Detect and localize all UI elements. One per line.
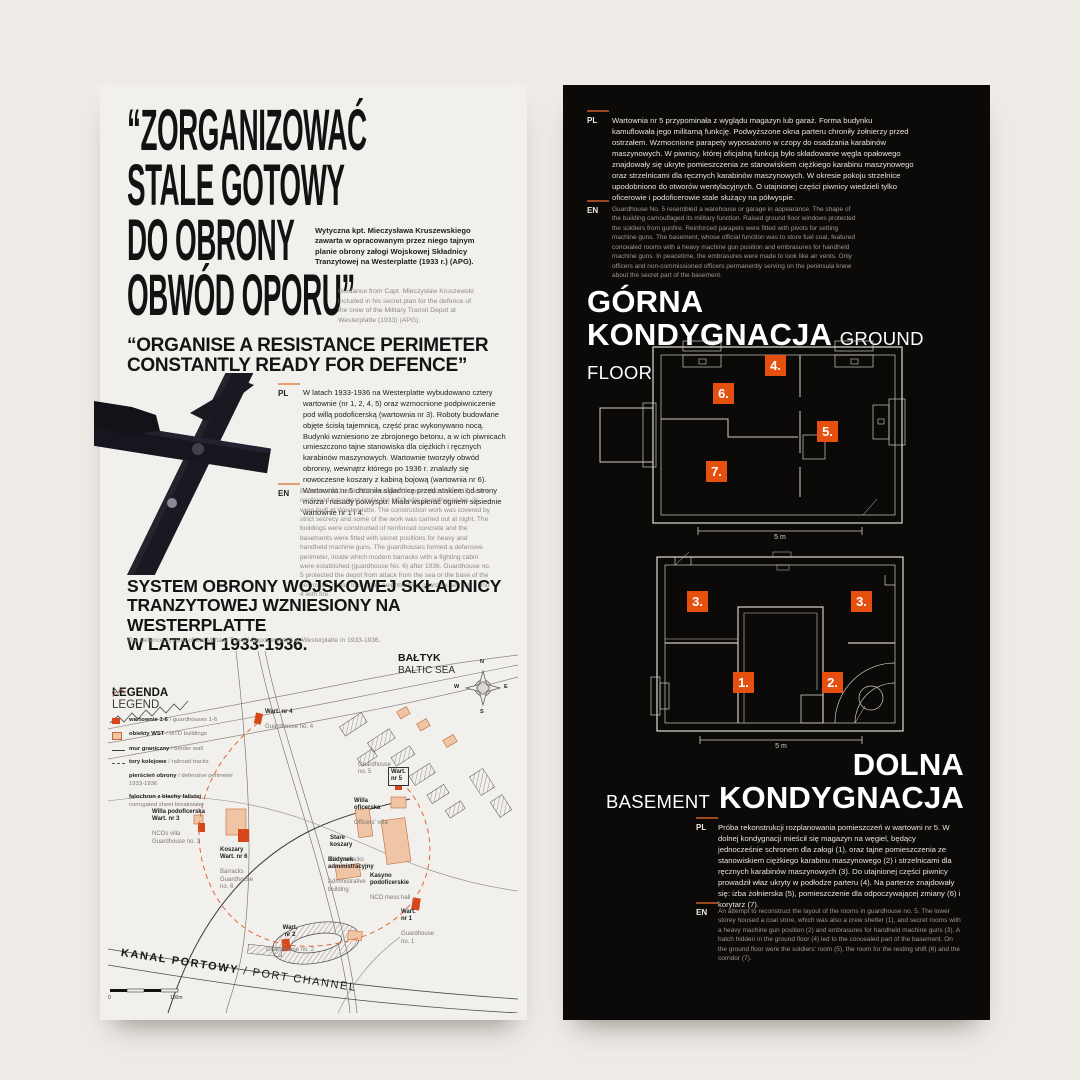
- room-marker-2: 2.: [822, 672, 843, 693]
- top-en-label-block: EN: [587, 200, 609, 215]
- legend-title-en: LEGEND: [112, 699, 234, 711]
- map-label-barracks-6: Koszary Wart. nr 6 Barracks Guardhouse n…: [220, 839, 253, 892]
- metal-cross-icon: [94, 373, 276, 575]
- map-label-guardhouse-2: Wart. nr 2 Guardhouse no. 2: [266, 917, 314, 955]
- legend-label-en: / guardhouses 1-6: [168, 717, 217, 723]
- orange-rule: [696, 817, 718, 819]
- orange-rule: [696, 902, 718, 904]
- room-marker-5: 5.: [817, 421, 838, 442]
- pl-label: PL: [696, 823, 718, 832]
- legend-item: tory kolejowe / railroad tracks: [112, 759, 234, 767]
- sea-label: BAŁTYK BALTIC SEA: [398, 653, 455, 676]
- legend-label-en: / border wall: [169, 746, 203, 752]
- bottom-paragraph-pl: Próba rekonstrukcji rozplanowania pomies…: [718, 822, 961, 910]
- railroad-line-icon: [112, 760, 129, 764]
- legend-item: mur graniczny / border wall: [112, 746, 234, 754]
- subtitle-quote-en: “ORGANISE A RESISTANCE PERIMETER CONSTAN…: [127, 336, 488, 376]
- legend-item: wartownie 1-6 / guardhouses 1-6: [112, 717, 234, 725]
- headline-caption-en: Guidance from Capt. Mieczysław Kruszewsk…: [338, 287, 476, 325]
- room-marker-6: 6.: [713, 383, 734, 404]
- basement-heading: DOLNA BASEMENT KONDYGNACJA: [606, 748, 964, 815]
- map-label-officers-villa: Willa oficerska Officers' villa: [354, 790, 388, 828]
- pl-label: PL: [278, 389, 300, 398]
- room-marker-3-left: 3.: [687, 591, 708, 612]
- headline-line: “ZORGANIZOWAĆ: [127, 103, 367, 158]
- orange-rule: [587, 110, 609, 112]
- legend-item: pierścień obrony / defensive perimeter 1…: [112, 773, 234, 788]
- section-title-line: TRANZYTOWEJ WZNIESIONY NA WESTERPLATTE: [127, 596, 527, 635]
- ground-floor-plan: 4. 6. 5. 7. 5 m: [563, 335, 990, 547]
- plan-scale-label: 5 m: [760, 534, 800, 541]
- guardhouse-swatch-icon: [112, 718, 129, 724]
- compass-w: W: [454, 684, 459, 690]
- legend-label-pl: pierścień obrony: [129, 773, 176, 779]
- poster-background: “ZORGANIZOWAĆ STALE GOTOWY DO OBRONY OBW…: [0, 0, 1080, 1080]
- compass-e: E: [504, 684, 508, 690]
- artefact-photo: [94, 373, 276, 575]
- intro-pl-label-block: PL: [278, 383, 300, 398]
- room-marker-1: 1.: [733, 672, 754, 693]
- right-poster-panel: PL Wartownia nr 5 przypominała z wyglądu…: [563, 85, 990, 1020]
- subtitle-line: “ORGANISE A RESISTANCE PERIMETER: [127, 336, 488, 356]
- map-label-mess-hall: Kasyno podoficerskie NCO mess hall: [370, 865, 410, 903]
- section-title-line: SYSTEM OBRONY WOJSKOWEJ SKŁADNICY: [127, 577, 527, 596]
- heading-pl-line: DOLNA: [606, 748, 964, 781]
- compass-n: N: [480, 659, 484, 665]
- sea-label-pl: BAŁTYK: [398, 653, 455, 665]
- map-label-guardhouse-5-box: Wart. nr 5: [388, 759, 409, 786]
- map-label-guardhouse-1: Wart. nr 1 Guardhouse no. 1: [401, 901, 434, 946]
- heading-pl-line: GÓRNA: [587, 285, 990, 318]
- heading-pl-line: KONDYGNACJA: [719, 780, 964, 815]
- legend-title-pl: LEGENDA: [112, 687, 234, 699]
- en-label: EN: [278, 489, 300, 498]
- site-map: LEGENDA LEGEND wartownie 1-6 / guardhous…: [108, 651, 518, 1013]
- top-paragraph-en: Guardhouse No. 5 resembled a warehouse o…: [612, 205, 860, 280]
- left-poster-panel: “ZORGANIZOWAĆ STALE GOTOWY DO OBRONY OBW…: [100, 85, 527, 1020]
- map-label-admin-building: Budynek administracyjny Administrative b…: [328, 849, 374, 894]
- top-paragraph-pl: Wartownia nr 5 przypominała z wyglądu ma…: [612, 115, 914, 203]
- heading-en: BASEMENT: [606, 791, 710, 812]
- bottom-pl-label-block: PL: [696, 817, 718, 832]
- bottom-paragraph-en: An attempt to reconstruct the layout of …: [718, 907, 961, 964]
- room-marker-3-right: 3.: [851, 591, 872, 612]
- room-marker-7: 7.: [706, 461, 727, 482]
- map-scale-end: 100m: [170, 995, 183, 1001]
- headline-line: OBWÓD OPORU”: [127, 268, 367, 323]
- orange-rule: [278, 483, 300, 485]
- legend-label-en: / railroad tracks: [167, 759, 209, 765]
- legend-label-en: / MTD buildings: [164, 731, 207, 737]
- headline-caption-pl: Wytyczna kpt. Mieczysława Kruszewskiego …: [315, 226, 477, 267]
- legend-item: obiekty WST / MTD buildings: [112, 731, 234, 740]
- orange-rule: [278, 383, 300, 385]
- wall-line-icon: [112, 747, 129, 751]
- legend-label-pl: tory kolejowe: [129, 759, 167, 765]
- sea-label-en: BALTIC SEA: [398, 665, 455, 676]
- legend-label-pl: falochron z blachy falistej: [129, 794, 201, 800]
- map-label-nco-villa: Willa podoficerska Wart. nr 3 NCOs villa…: [152, 801, 205, 846]
- map-label-guardhouse-4: Wart. nr 4 Guardhouse no. 4: [265, 701, 313, 731]
- bottom-en-label-block: EN: [696, 902, 718, 917]
- legend-label-pl: obiekty WST: [129, 731, 164, 737]
- pl-label: PL: [587, 116, 609, 125]
- basement-plan: 3. 3. 1. 2. 5 m: [563, 550, 990, 755]
- orange-rule: [587, 200, 609, 202]
- en-label: EN: [696, 908, 718, 917]
- legend-label-pl: wartownie 1-6: [129, 717, 168, 723]
- compass-s: S: [480, 709, 484, 715]
- headline-line: STALE GOTOWY: [127, 158, 367, 213]
- map-label-guardhouse-5: Guardhouse no. 5: [358, 754, 391, 777]
- top-pl-label-block: PL: [587, 110, 609, 125]
- map-scale-start: 0: [108, 995, 111, 1001]
- intro-en-label-block: EN: [278, 483, 300, 498]
- legend-label-pl: mur graniczny: [129, 746, 169, 752]
- room-marker-4: 4.: [765, 355, 786, 376]
- building-swatch-icon: [112, 732, 129, 740]
- section-subtitle-en: The defence system of the Military Trans…: [127, 637, 381, 644]
- en-label: EN: [587, 206, 609, 215]
- map-legend: LEGENDA LEGEND wartownie 1-6 / guardhous…: [112, 687, 234, 810]
- compass-rose-icon: N E S W: [460, 665, 506, 711]
